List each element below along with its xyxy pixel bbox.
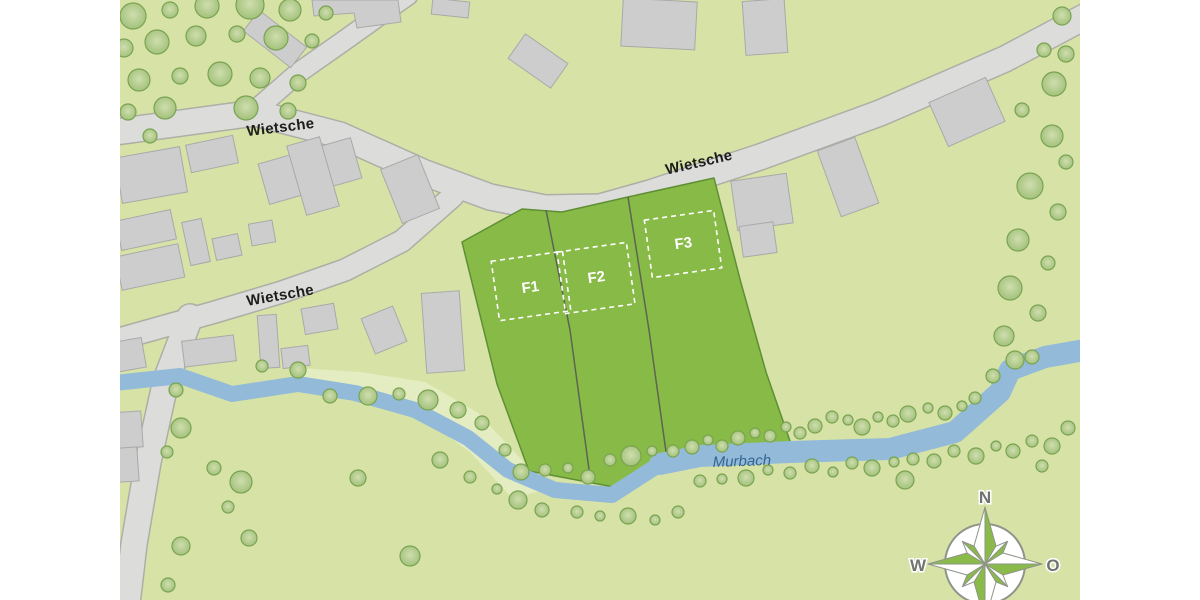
tree-icon	[256, 360, 268, 372]
building	[742, 0, 788, 55]
tree-icon	[1050, 204, 1066, 220]
tree-icon	[207, 461, 221, 475]
tree-icon	[509, 491, 527, 509]
tree-icon	[171, 418, 191, 438]
tree-icon	[1036, 460, 1048, 472]
tree-icon	[290, 362, 306, 378]
building	[212, 234, 242, 261]
tree-icon	[464, 471, 476, 483]
tree-icon	[873, 412, 883, 422]
tree-icon	[854, 419, 870, 435]
tree-icon	[994, 326, 1014, 346]
tree-icon	[115, 39, 133, 57]
building	[107, 411, 143, 449]
tree-icon	[1037, 43, 1051, 57]
tree-icon	[968, 448, 984, 464]
tree-icon	[172, 537, 190, 555]
tree-icon	[685, 440, 699, 454]
tree-icon	[1059, 155, 1073, 169]
tree-icon	[571, 506, 583, 518]
tree-icon	[969, 392, 981, 404]
tree-icon	[808, 419, 822, 433]
tree-icon	[305, 34, 319, 48]
tree-icon	[161, 446, 173, 458]
tree-icon	[513, 464, 529, 480]
tree-icon	[620, 508, 636, 524]
tree-icon	[492, 484, 502, 494]
tree-icon	[1026, 435, 1038, 447]
tree-icon	[805, 459, 819, 473]
tree-icon	[896, 471, 914, 489]
building	[739, 222, 777, 257]
tree-icon	[731, 431, 745, 445]
tree-icon	[264, 26, 288, 50]
tree-icon	[647, 446, 657, 456]
tree-icon	[400, 546, 420, 566]
tree-icon	[350, 470, 366, 486]
tree-icon	[120, 104, 136, 120]
building	[731, 173, 793, 230]
tree-icon	[889, 457, 899, 467]
tree-icon	[290, 75, 306, 91]
tree-icon	[1042, 72, 1066, 96]
tree-icon	[1041, 125, 1063, 147]
tree-icon	[162, 2, 178, 18]
stream-label-murbach: Murbach	[712, 452, 771, 471]
tree-icon	[694, 475, 706, 487]
compass-letter-o: O	[1046, 556, 1059, 575]
tree-icon	[794, 427, 806, 439]
tree-icon	[1030, 305, 1046, 321]
building	[421, 291, 464, 373]
tree-icon	[1006, 444, 1020, 458]
tree-icon	[1053, 7, 1071, 25]
tree-icon	[120, 3, 146, 29]
tree-icon	[250, 68, 270, 88]
tree-icon	[172, 68, 188, 84]
tree-icon	[986, 369, 1000, 383]
tree-icon	[781, 422, 791, 432]
tree-icon	[186, 26, 206, 46]
tree-icon	[923, 403, 933, 413]
plot-label-f1: F1	[521, 278, 541, 297]
tree-icon	[229, 26, 245, 42]
tree-icon	[948, 445, 960, 457]
tree-icon	[1061, 421, 1075, 435]
tree-icon	[764, 430, 776, 442]
tree-icon	[887, 415, 899, 427]
tree-icon	[784, 467, 796, 479]
tree-icon	[1006, 351, 1024, 369]
tree-icon	[826, 411, 838, 423]
tree-icon	[128, 69, 150, 91]
tree-icon	[359, 387, 377, 405]
tree-icon	[230, 471, 252, 493]
tree-icon	[864, 460, 880, 476]
tree-icon	[208, 62, 232, 86]
tree-icon	[143, 129, 157, 143]
tree-icon	[241, 530, 257, 546]
tree-icon	[234, 96, 258, 120]
tree-icon	[475, 416, 489, 430]
compass-letter-n: N	[979, 488, 991, 507]
tree-icon	[154, 97, 176, 119]
tree-icon	[1007, 229, 1029, 251]
tree-icon	[1017, 173, 1043, 199]
building	[301, 303, 338, 334]
tree-icon	[323, 389, 337, 403]
tree-icon	[393, 388, 405, 400]
tree-icon	[169, 383, 183, 397]
plot-label-f3: F3	[674, 234, 694, 253]
tree-icon	[927, 454, 941, 468]
tree-icon	[900, 406, 916, 422]
tree-icon	[145, 30, 169, 54]
tree-icon	[716, 440, 728, 452]
tree-icon	[595, 511, 605, 521]
tree-icon	[535, 503, 549, 517]
tree-icon	[604, 454, 616, 466]
tree-icon	[195, 0, 219, 18]
tree-icon	[907, 453, 919, 465]
tree-icon	[750, 428, 760, 438]
compass-letter-w: W	[910, 556, 927, 575]
tree-icon	[161, 578, 175, 592]
building	[105, 447, 139, 483]
tree-icon	[998, 276, 1022, 300]
tree-icon	[1025, 350, 1039, 364]
tree-icon	[222, 501, 234, 513]
plot-label-f2: F2	[587, 268, 607, 287]
tree-icon	[738, 470, 754, 486]
tree-icon	[499, 444, 511, 456]
tree-icon	[418, 390, 438, 410]
site-plan-map: F1 F2 F3 Wietsche Wietsche Wietsche Murb…	[0, 0, 1200, 600]
tree-icon	[539, 464, 551, 476]
building	[621, 0, 697, 50]
tree-icon	[828, 467, 838, 477]
tree-icon	[650, 515, 660, 525]
tree-icon	[846, 457, 858, 469]
tree-icon	[450, 402, 466, 418]
tree-icon	[1058, 46, 1074, 62]
tree-icon	[667, 445, 679, 457]
tree-icon	[1041, 256, 1055, 270]
tree-icon	[938, 406, 952, 420]
tree-icon	[703, 435, 713, 445]
tree-icon	[1044, 438, 1060, 454]
map-canvas: F1 F2 F3 Wietsche Wietsche Wietsche Murb…	[0, 0, 1200, 600]
tree-icon	[621, 446, 641, 466]
tree-icon	[843, 415, 853, 425]
tree-icon	[581, 470, 595, 484]
tree-icon	[1015, 103, 1029, 117]
tree-icon	[432, 452, 448, 468]
tree-icon	[319, 6, 333, 20]
tree-icon	[717, 474, 727, 484]
tree-icon	[279, 0, 301, 21]
building	[110, 337, 147, 372]
tree-icon	[991, 441, 1001, 451]
building	[248, 220, 275, 246]
tree-icon	[957, 401, 967, 411]
tree-icon	[672, 506, 684, 518]
tree-icon	[563, 463, 573, 473]
